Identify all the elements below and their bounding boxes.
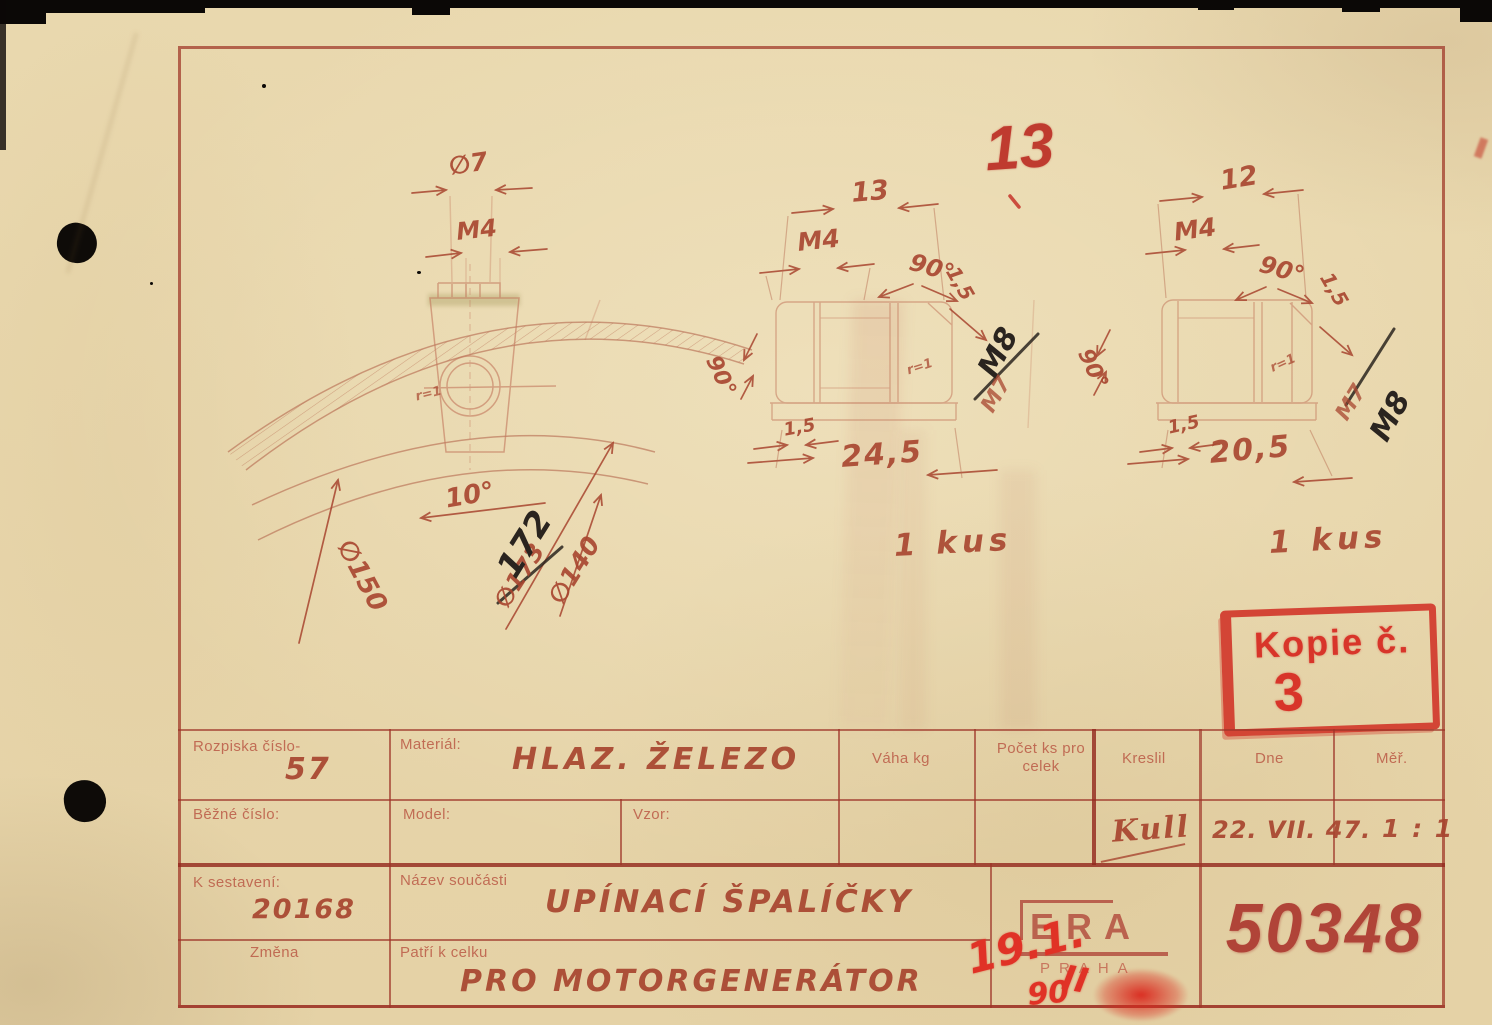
dne-value: 22. VII. 47. [1212,816,1371,844]
sheet-number-tick [1010,196,1019,207]
material-label: Materiál: [400,736,461,753]
titleblock-line-heavy [1092,729,1096,865]
material-value: HLAZ. ŽELEZO [512,742,800,777]
dim-mid-length: 24,5 [840,434,924,475]
nazev-soucasti-value: UPÍNACÍ ŠPALÍČKY [545,884,913,920]
titleblock-line [974,729,976,865]
copy-stamp-label: Kopie č. [1253,619,1410,666]
k-sestaveni-value: 20168 [252,894,356,925]
dne-label: Dne [1255,750,1284,767]
zmena-label: Změna [250,944,299,961]
sheet-number-stamp: 13 [983,110,1057,186]
kreslil-label: Kreslil [1122,750,1166,767]
vzor-label: Vzor: [633,806,670,823]
rozpiska-value: 57 [285,752,331,787]
k-sestaveni-label: K sestavení: [193,874,280,891]
dim-right-thread: M4 [1172,212,1218,247]
model-label: Model: [403,806,450,823]
drawing-number: 50348 [1205,888,1445,968]
dim-right-width: 12 [1218,160,1260,196]
titleblock-line [178,1005,1445,1008]
nazev-soucasti-label: Název součásti [400,872,507,889]
titleblock-line [1199,729,1202,1008]
titleblock-line-heavy [178,863,1445,867]
meritko-label: Měř. [1376,750,1408,767]
era-logo-bar-top [1020,900,1113,903]
titleblock-line [178,939,990,941]
dim-mid-thread: M4 [796,224,841,257]
drawing-linework [0,0,1492,1025]
dim-right-length: 20,5 [1208,429,1293,471]
titleblock-line [838,729,840,865]
copy-stamp: Kopie č. 3 [1220,603,1440,736]
patri-k-celku-label: Patří k celku [400,944,488,961]
patri-k-celku-value: PRO MOTORGENERÁTOR [460,964,923,999]
titleblock-line [620,799,622,865]
dim-left-hole-diameter: ∅7 [447,147,489,181]
dim-left-thread: M4 [455,214,498,246]
meritko-value: 1 : 1 [1382,814,1454,843]
dim-right-quantity: 1 kus [1268,519,1388,561]
vaha-label: Váha kg [872,750,930,767]
titleblock-line [1333,729,1335,865]
dim-mid-quantity: 1 kus [893,522,1013,564]
titleblock-line [389,729,391,1008]
titleblock-line [178,799,1445,801]
copy-stamp-number: 3 [1273,661,1305,724]
bezne-cislo-label: Běžné číslo: [193,806,280,823]
left-view-arcs [228,322,752,540]
dim-mid-width: 13 [850,175,890,209]
pocet-ks-label: Počet ks pro celek [995,740,1087,776]
scanned-drawing-page: { "colors": { "paper": "#e9d8ae", "ink_r… [0,0,1492,1025]
titleblock-line [178,729,1445,731]
